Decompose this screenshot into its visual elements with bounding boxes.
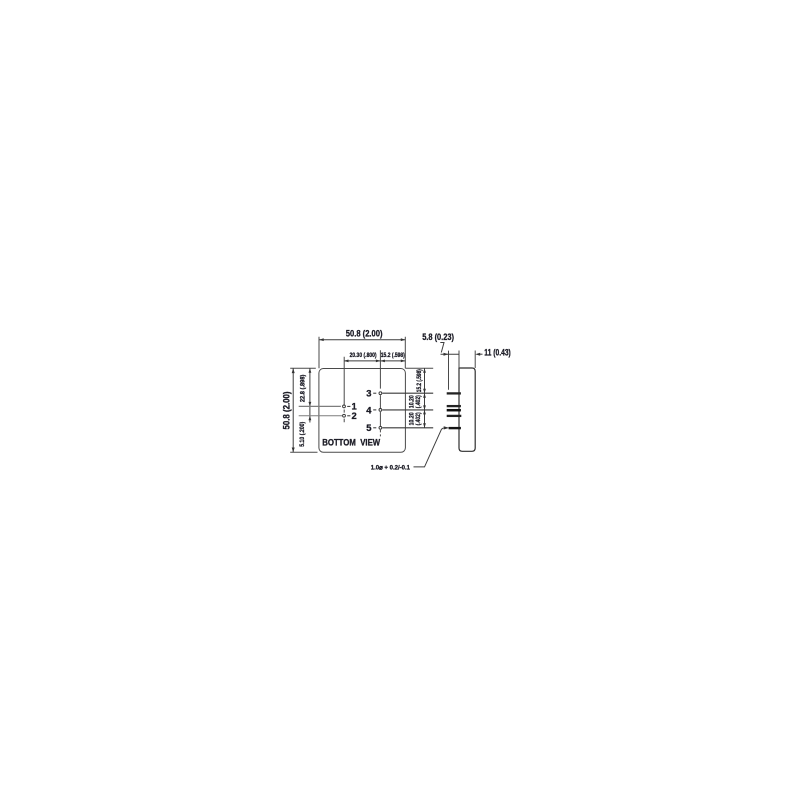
svg-text:3: 3: [366, 388, 371, 399]
svg-text:11 (0.43): 11 (0.43): [484, 347, 511, 357]
svg-text:2: 2: [352, 410, 357, 421]
svg-text:BOTTOM VIEW: BOTTOM VIEW: [322, 438, 380, 448]
svg-text:5.10 (.200): 5.10 (.200): [299, 422, 306, 447]
svg-text:(.402): (.402): [415, 412, 422, 425]
svg-text:4: 4: [366, 404, 372, 415]
svg-text:(.402): (.402): [415, 395, 422, 408]
svg-text:22.8 (.898): 22.8 (.898): [300, 375, 307, 403]
svg-text:15.2 (.598): 15.2 (.598): [416, 369, 423, 392]
svg-text:20.30 (.800): 20.30 (.800): [350, 352, 377, 359]
svg-text:1.0⌀ + 0.2/-0.1: 1.0⌀ + 0.2/-0.1: [371, 465, 411, 472]
svg-text:15.2 (.598): 15.2 (.598): [381, 352, 405, 359]
svg-text:50.8 (2.00): 50.8 (2.00): [281, 392, 291, 430]
svg-text:5.8 (0.23): 5.8 (0.23): [422, 332, 454, 342]
svg-text:5: 5: [366, 422, 371, 433]
svg-text:50.8 (2.00): 50.8 (2.00): [346, 329, 383, 339]
